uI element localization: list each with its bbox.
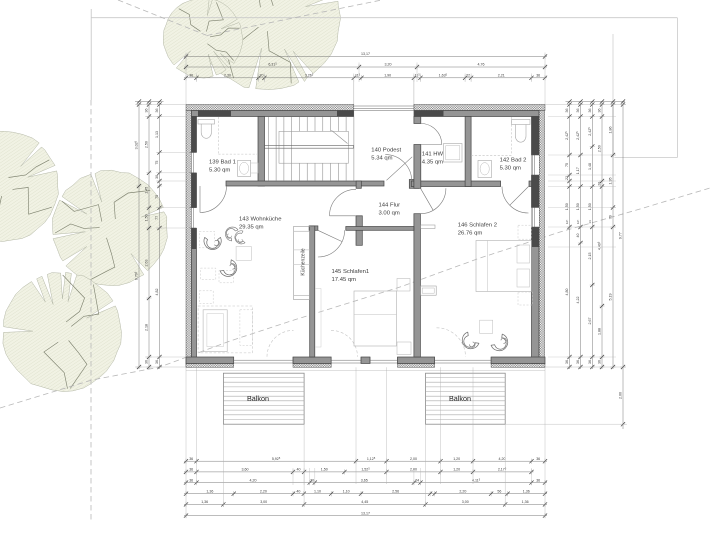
svg-text:20: 20 <box>310 478 314 482</box>
svg-text:36: 36 <box>145 109 149 113</box>
svg-text:36: 36 <box>565 109 569 113</box>
svg-text:146 Schlafen 2: 146 Schlafen 2 <box>458 223 497 229</box>
svg-text:4,76: 4,76 <box>478 63 485 67</box>
svg-text:36: 36 <box>536 74 540 78</box>
svg-text:1,20: 1,20 <box>453 457 460 461</box>
svg-text:70: 70 <box>609 215 613 219</box>
svg-text:1,50: 1,50 <box>321 468 328 472</box>
svg-text:36: 36 <box>155 109 159 113</box>
svg-text:56: 56 <box>497 489 501 493</box>
svg-text:1,17: 1,17 <box>576 167 580 174</box>
svg-text:3.00 qm: 3.00 qm <box>379 210 400 216</box>
svg-text:2,20: 2,20 <box>260 489 267 493</box>
svg-text:2,15: 2,15 <box>588 253 592 260</box>
svg-text:36: 36 <box>189 74 193 78</box>
svg-text:4,20: 4,20 <box>250 478 257 482</box>
svg-text:3,60: 3,60 <box>242 468 249 472</box>
svg-text:4.35 qm: 4.35 qm <box>422 159 443 165</box>
svg-text:1,36: 1,36 <box>201 500 208 504</box>
svg-text:22: 22 <box>466 74 470 78</box>
svg-text:1,36: 1,36 <box>523 489 530 493</box>
svg-text:13,17: 13,17 <box>361 52 370 56</box>
svg-text:143 Wohnküche: 143 Wohnküche <box>239 217 282 223</box>
svg-text:3,65: 3,65 <box>361 478 368 482</box>
svg-text:1,50: 1,50 <box>565 203 569 210</box>
svg-text:14: 14 <box>588 220 592 224</box>
svg-text:36: 36 <box>588 109 592 113</box>
svg-text:1,45: 1,45 <box>145 187 149 194</box>
svg-text:36: 36 <box>576 109 580 113</box>
svg-text:1,10: 1,10 <box>314 489 321 493</box>
svg-text:36: 36 <box>576 360 580 364</box>
svg-text:77: 77 <box>155 216 159 220</box>
svg-text:36: 36 <box>536 457 540 461</box>
svg-text:17.45 qm: 17.45 qm <box>332 277 357 283</box>
svg-text:1,48: 1,48 <box>588 163 592 170</box>
svg-text:36: 36 <box>565 360 569 364</box>
svg-text:2,00: 2,00 <box>410 457 417 461</box>
svg-text:2,20: 2,20 <box>459 489 466 493</box>
svg-text:5,19: 5,19 <box>609 294 613 301</box>
svg-text:4,22: 4,22 <box>576 297 580 304</box>
svg-text:20: 20 <box>260 74 264 78</box>
svg-text:36: 36 <box>189 457 193 461</box>
svg-text:141 HW: 141 HW <box>422 152 444 158</box>
svg-text:3,00: 3,00 <box>462 500 469 504</box>
svg-text:2,00: 2,00 <box>410 468 417 472</box>
svg-text:24: 24 <box>415 478 419 482</box>
svg-text:1,50: 1,50 <box>145 214 149 221</box>
svg-text:40: 40 <box>296 489 300 493</box>
svg-text:29.35 qm: 29.35 qm <box>239 224 264 230</box>
svg-text:1,90: 1,90 <box>384 74 391 78</box>
svg-text:2,50: 2,50 <box>145 141 149 148</box>
svg-text:5.30 qm: 5.30 qm <box>500 165 521 171</box>
svg-text:2,18: 2,18 <box>145 324 149 331</box>
svg-text:2,56: 2,56 <box>392 489 399 493</box>
svg-text:142 Bad 2: 142 Bad 2 <box>500 158 527 164</box>
svg-text:2,21: 2,21 <box>498 74 505 78</box>
svg-text:5.30 qm: 5.30 qm <box>209 167 230 173</box>
svg-text:1,20: 1,20 <box>453 468 460 472</box>
svg-text:1,88: 1,88 <box>598 328 602 335</box>
svg-text:30: 30 <box>155 175 159 179</box>
svg-text:Balkon: Balkon <box>247 394 269 403</box>
svg-text:139 Bad 1: 139 Bad 1 <box>209 160 236 166</box>
svg-text:4,20: 4,20 <box>499 457 506 461</box>
svg-text:4,82: 4,82 <box>155 289 159 296</box>
svg-text:140 Podest: 140 Podest <box>371 148 401 154</box>
svg-text:20: 20 <box>598 182 602 186</box>
svg-text:2,50: 2,50 <box>598 145 602 152</box>
svg-text:75: 75 <box>565 163 569 167</box>
svg-text:1,10: 1,10 <box>343 489 350 493</box>
svg-text:1,50: 1,50 <box>588 203 592 210</box>
svg-text:5.34 qm: 5.34 qm <box>371 155 392 161</box>
svg-text:4,45: 4,45 <box>361 500 368 504</box>
svg-text:75: 75 <box>155 195 159 199</box>
svg-text:4,80: 4,80 <box>565 289 569 296</box>
svg-text:145 Schlafen1: 145 Schlafen1 <box>332 269 370 275</box>
svg-text:75: 75 <box>155 161 159 165</box>
svg-text:36: 36 <box>145 360 149 364</box>
svg-text:3,00: 3,00 <box>260 500 267 504</box>
svg-text:1,36: 1,36 <box>206 489 213 493</box>
svg-text:22: 22 <box>565 176 569 180</box>
svg-text:40: 40 <box>297 468 301 472</box>
svg-text:36: 36 <box>189 478 193 482</box>
svg-text:9,77: 9,77 <box>619 232 623 239</box>
svg-text:144 Flur: 144 Flur <box>379 203 401 209</box>
svg-text:3,20: 3,20 <box>385 63 392 67</box>
svg-text:1,36: 1,36 <box>522 500 529 504</box>
svg-text:26.76 qm: 26.76 qm <box>458 230 483 236</box>
svg-text:2,30: 2,30 <box>224 74 231 78</box>
svg-text:36: 36 <box>598 360 602 364</box>
svg-text:Küchenzeile: Küchenzeile <box>300 248 306 275</box>
svg-text:13,17: 13,17 <box>361 511 370 515</box>
svg-text:1,50: 1,50 <box>576 203 580 210</box>
svg-text:36: 36 <box>155 360 159 364</box>
svg-text:36: 36 <box>189 468 193 472</box>
svg-text:2,67: 2,67 <box>588 318 592 325</box>
svg-text:40: 40 <box>576 234 580 238</box>
svg-text:36: 36 <box>588 360 592 364</box>
svg-text:36: 36 <box>598 109 602 113</box>
svg-text:1,13: 1,13 <box>155 131 159 138</box>
svg-text:36: 36 <box>536 478 540 482</box>
svg-text:2,00: 2,00 <box>619 392 623 399</box>
svg-text:Balkon: Balkon <box>449 394 471 403</box>
svg-text:1,86: 1,86 <box>609 127 613 134</box>
svg-text:2,63: 2,63 <box>145 260 149 267</box>
